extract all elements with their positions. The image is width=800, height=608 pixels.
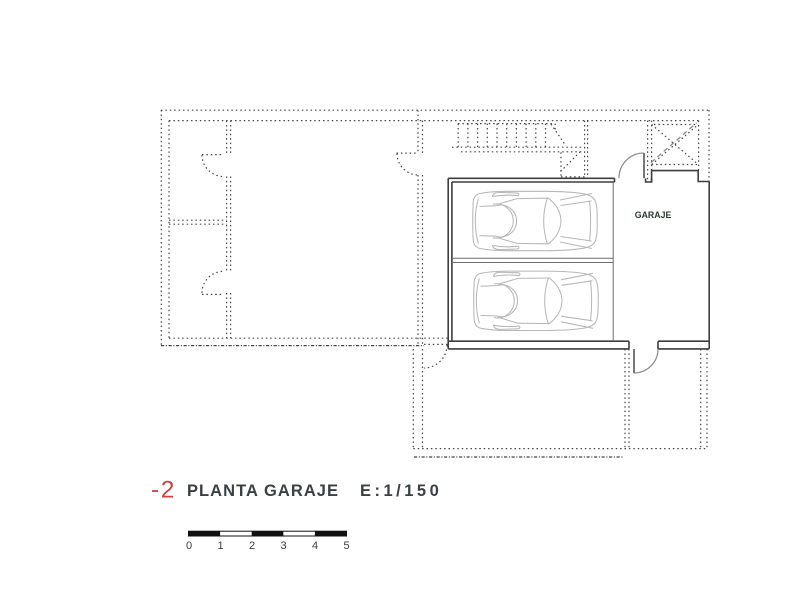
svg-text:3: 3 <box>280 540 286 552</box>
svg-text:PLANTA GARAJE: PLANTA GARAJE <box>187 482 339 500</box>
svg-text:1: 1 <box>217 540 223 552</box>
svg-text:5: 5 <box>343 540 349 552</box>
svg-text:4: 4 <box>312 540 318 552</box>
svg-text:-2: -2 <box>151 477 176 504</box>
svg-text:2: 2 <box>249 540 255 552</box>
svg-text:E:1/150: E:1/150 <box>360 482 442 500</box>
svg-text:0: 0 <box>186 540 192 552</box>
svg-text:GARAJE: GARAJE <box>635 210 672 221</box>
